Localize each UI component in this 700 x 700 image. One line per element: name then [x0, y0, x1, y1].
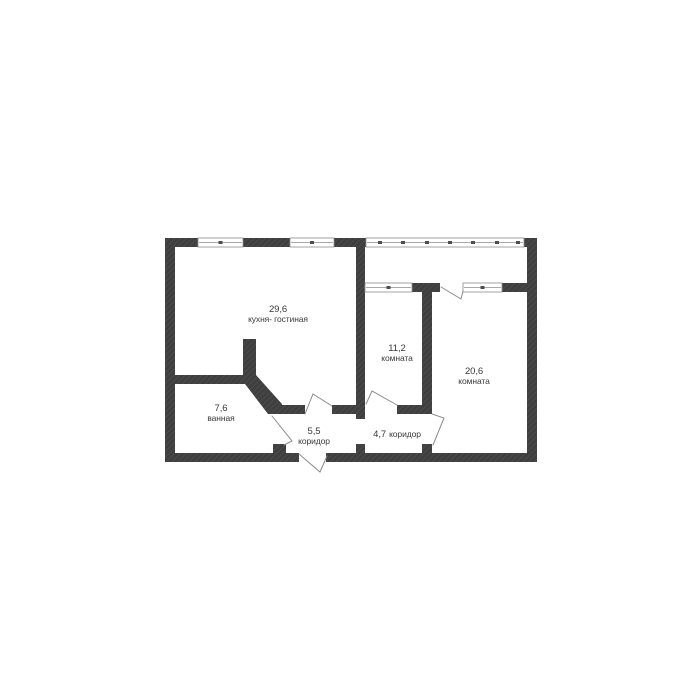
wall-bathroom-top [175, 375, 252, 384]
wall-bottom-segment-1 [165, 453, 299, 462]
floor-plan: 29,6 кухня- гостиная 11,2 комната 20,6 к… [0, 0, 700, 700]
wall-balcony-inner-2 [502, 283, 527, 292]
door-bathroom [272, 416, 292, 445]
label-room1-name: комната [381, 353, 413, 363]
balcony-mullion-6 [495, 241, 499, 244]
wall-room1-bottom [397, 405, 432, 414]
label-bathroom-name: ванная [207, 413, 235, 423]
balcony-mullion-5 [471, 241, 475, 244]
label-room2-name: комната [458, 376, 490, 386]
wall-kitchen-door-left [281, 405, 305, 414]
door-room1 [366, 391, 397, 405]
door-balcony [441, 287, 463, 299]
wall-kitchen-spur [243, 339, 256, 375]
balcony-mullion-3 [425, 241, 429, 244]
door-kitchen [305, 394, 332, 414]
wall-top-segment-3 [334, 238, 366, 247]
window-kitchen-2-mullion [310, 241, 314, 244]
label-hall1-name: коридор [298, 436, 330, 446]
wall-room2-door-stub [422, 444, 432, 453]
balcony-mullion-7 [516, 241, 520, 244]
walls [165, 238, 537, 462]
wall-left-outer [165, 238, 175, 462]
wall-bottom-segment-2 [326, 453, 537, 462]
window-kitchen-1-mullion [219, 241, 223, 244]
label-kitchen-name: кухня- гостиная [248, 314, 308, 324]
wall-top-segment-2 [243, 238, 290, 247]
wall-rooms-divider [422, 292, 432, 412]
floor-plan-canvas: 29,6 кухня- гостиная 11,2 комната 20,6 к… [0, 0, 700, 700]
window-room1-mullion [387, 286, 391, 289]
wall-corridor-passage-stub [356, 444, 365, 453]
wall-kitchen-right [356, 247, 365, 419]
label-hall2-name: коридор [389, 429, 421, 439]
wall-bathroom-diagonal [245, 375, 282, 414]
label-hall2: 4,7коридор [373, 429, 421, 440]
door-room2 [432, 414, 444, 445]
balcony-mullion-1 [378, 241, 382, 244]
wall-balcony-inner-1 [412, 283, 440, 292]
wall-kitchen-door-right [332, 405, 356, 414]
door-entrance [299, 454, 327, 472]
window-room2-mullion [481, 286, 485, 289]
wall-right-outer [527, 238, 537, 462]
label-hall2-area: 4,7 [373, 429, 386, 440]
balcony-mullion-2 [401, 241, 405, 244]
balcony-mullion-4 [448, 241, 452, 244]
